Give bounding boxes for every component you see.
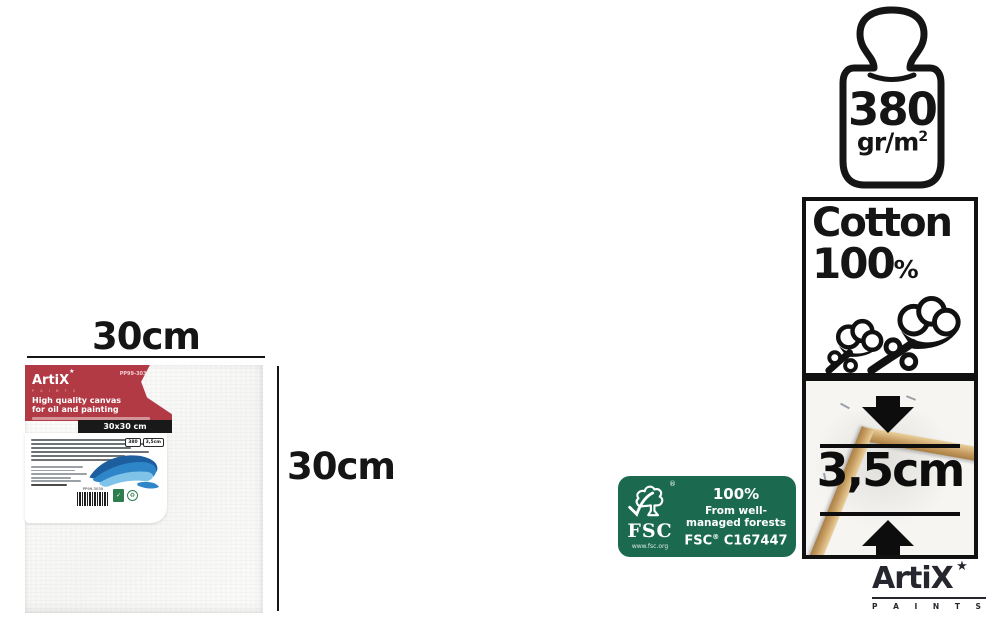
weight-value-block: 380 gr/m2	[833, 90, 951, 153]
width-dimension-line	[27, 356, 265, 358]
footer-brand-rule	[872, 597, 986, 599]
company-text-line	[31, 470, 75, 472]
arrow-up-icon	[862, 520, 914, 546]
cotton-percent: %	[894, 255, 919, 284]
brand-sub-label: P A I N T S	[32, 389, 166, 393]
weight-value: 380	[833, 90, 951, 131]
product-code: PP99-3030	[120, 371, 150, 377]
canvas-product-photo: ArtiX★ PP99-3030 P A I N T S High qualit…	[25, 365, 263, 613]
depth-value: 3,5cm	[806, 443, 974, 497]
company-code-line	[31, 484, 67, 487]
product-sticker: ArtiX★ PP99-3030 P A I N T S High qualit…	[25, 365, 175, 525]
company-text-line	[31, 473, 87, 475]
fsc-logo-block: ® FSC www.fsc.org	[618, 476, 682, 557]
product-infographic: 30cm 30cm ArtiX★ PP99-3030 P A I N T S H…	[0, 0, 1000, 641]
registered-mark: ®	[669, 480, 676, 488]
fsc-certification-badge: ® FSC www.fsc.org 100% From well- manage…	[618, 476, 796, 557]
cotton-word: Cotton	[812, 203, 969, 243]
weight-spec-icon: 380 gr/m2	[833, 4, 951, 194]
fsc-acronym: FSC	[627, 522, 672, 541]
brand-logo: ArtiX★	[32, 373, 75, 388]
depth-spec-box: 3,5cm	[802, 377, 978, 559]
staple-icon	[906, 395, 916, 401]
fsc-desc-line1: From well-	[686, 505, 786, 517]
cotton-value-row: 100%	[812, 245, 969, 283]
width-dimension-label: 30cm	[27, 315, 265, 358]
company-text-line	[31, 477, 71, 479]
mini-weight-badge: 380	[125, 438, 140, 447]
mini-depth-badge: 3,5cm	[143, 438, 164, 447]
footer-brand-sub: P A I N T S	[872, 602, 988, 611]
barcode	[77, 492, 109, 506]
fsc-percent: 100%	[713, 485, 759, 503]
product-title-line2: for oil and painting	[32, 406, 166, 415]
height-dimension-label: 30cm	[287, 445, 395, 488]
barcode-number: PP99-3030	[77, 486, 109, 491]
sticker-red-panel: ArtiX★ PP99-3030 P A I N T S High qualit…	[25, 365, 172, 421]
footer-brand-logo: ArtiX★ P A I N T S	[872, 564, 988, 611]
product-title: High quality canvas for oil and painting	[32, 397, 166, 415]
cotton-value: 100	[812, 239, 894, 288]
sticker-brand-row: ArtiX★ PP99-3030	[32, 369, 166, 388]
cotton-spec-box: Cotton 100%	[802, 197, 978, 377]
size-bar: 30x30 cm	[78, 420, 172, 433]
barcode-block: PP99-3030	[77, 486, 109, 506]
company-text-line	[31, 466, 83, 468]
fsc-desc-line2: managed forests	[686, 517, 786, 529]
fsc-text-block: 100% From well- managed forests FSC® C16…	[682, 476, 796, 557]
brand-star-icon: ★	[956, 560, 967, 573]
arrow-down-icon	[862, 407, 914, 433]
footer-brand-name: ArtiX★	[872, 564, 953, 594]
cotton-plants-icon	[814, 291, 972, 373]
paint-stroke-art	[83, 447, 163, 491]
height-dimension-line	[277, 366, 279, 611]
eco-mini-icon: ♻	[127, 490, 138, 501]
company-text-line	[31, 480, 81, 482]
fsc-tree-icon	[627, 481, 673, 521]
staple-icon	[840, 403, 850, 409]
fsc-desc: From well- managed forests	[686, 505, 786, 529]
mini-spec-badges: 380 3,5cm	[125, 438, 164, 447]
fsc-mini-icon: ✓	[113, 489, 124, 502]
fsc-website: www.fsc.org	[632, 543, 668, 550]
brand-star-icon: ★	[69, 368, 74, 375]
sticker-white-panel: 380 3,5cm PP99-3030 ✓	[25, 433, 167, 523]
measure-line-bottom	[820, 512, 960, 516]
arrow-up-icon	[876, 544, 900, 556]
certification-icons: ✓ ♻	[113, 489, 138, 502]
fsc-license-code: FSC® C167447	[684, 533, 787, 548]
